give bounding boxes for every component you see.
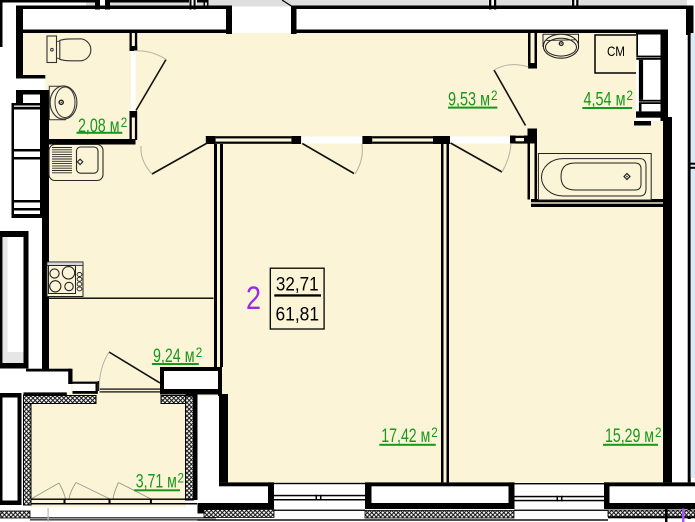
svg-text:2: 2	[178, 469, 185, 485]
svg-text:2: 2	[655, 424, 662, 440]
svg-text:61,81: 61,81	[276, 304, 320, 325]
svg-text:32,71: 32,71	[276, 274, 319, 295]
svg-text:2: 2	[121, 114, 128, 130]
svg-text:2,08 м: 2,08 м	[78, 116, 120, 137]
svg-text:2: 2	[491, 87, 498, 103]
svg-text:2: 2	[627, 87, 634, 103]
svg-text:2: 2	[431, 424, 438, 440]
svg-text:СМ: СМ	[607, 43, 625, 59]
svg-text:2: 2	[196, 344, 203, 360]
svg-text:2: 2	[246, 280, 261, 316]
